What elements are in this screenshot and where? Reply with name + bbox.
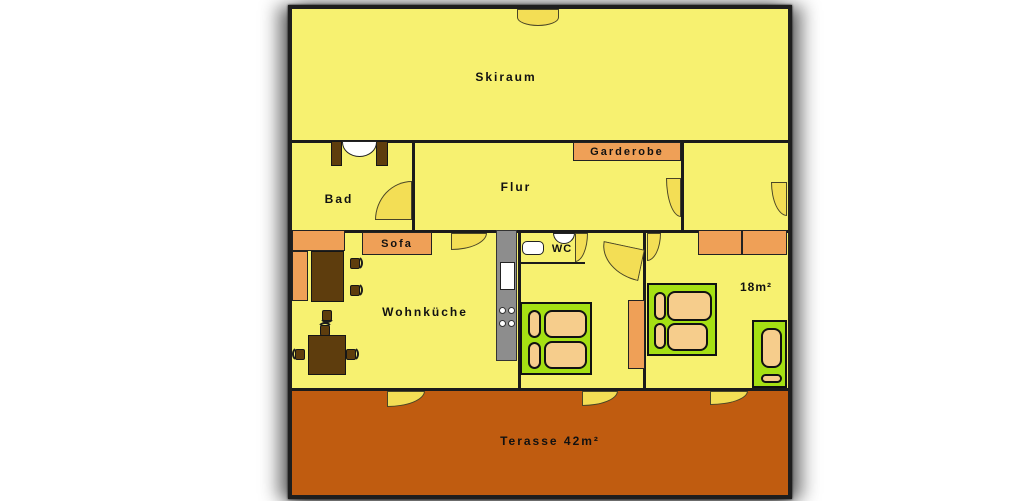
mattress [667,323,708,351]
stove-burner [508,307,515,314]
room-label-bad: Bad [325,192,354,206]
kitchen-sink [500,262,515,290]
sofa: Sofa [362,232,432,255]
wc-toilet [522,241,544,255]
mattress [544,310,587,338]
corner-bench-top [292,230,345,251]
door-swing-bad [375,181,412,220]
wardrobe [628,300,645,369]
room-label-bedroom-area: 18m² [740,280,772,294]
wall-bad-flur [412,140,415,233]
double-bed-right [647,283,717,356]
chair [321,309,331,320]
chair [319,324,329,335]
mattress [761,328,782,368]
chair [349,257,359,268]
pillow [654,292,666,320]
double-bed-left [520,302,592,375]
bath-cabinet-left [331,141,342,166]
door-swing-flur [666,178,681,217]
room-label-flur: Flur [501,180,532,194]
dining-table-1 [311,251,344,302]
door-swing-skiraum [517,9,559,26]
stove-burner [499,320,506,327]
door-swing-wohnkueche [451,233,487,250]
door-swing-exterior-right [771,182,787,216]
sofa-label: Sofa [381,238,413,250]
pillow [528,310,541,338]
garderobe-label: Garderobe [590,146,664,158]
mattress [544,341,587,369]
mattress [667,291,712,321]
door-swing-bedroom-left [597,241,645,281]
room-label-terrace: Terasse 42m² [500,434,600,448]
room-label-wc: WC [552,243,572,255]
room-label-wohnkueche: Wohnküche [382,305,468,319]
door-swing-bedroom-right [647,233,661,261]
wall-flur-right [681,140,684,233]
closet-left [698,230,742,255]
chair [345,348,355,359]
chair [349,284,359,295]
closet-right [742,230,787,255]
wall-wc-bottom [520,262,585,264]
washbasin [342,141,377,157]
dining-table-2 [308,335,346,375]
bath-cabinet-right [376,141,388,166]
kitchen-counter [496,230,517,361]
single-bed [752,320,787,388]
room-label-skiraum: Skiraum [475,70,536,84]
door-swing-wc [575,233,588,262]
chair [294,348,304,359]
garderobe-cabinet: Garderobe [573,142,681,161]
pillow [528,342,541,369]
stove-burner [499,307,506,314]
corner-bench-side [292,251,308,301]
pillow [654,323,666,349]
floor-plan: Garderobe Sofa Skiraum Bad [288,5,792,499]
stove-burner [508,320,515,327]
pillow [761,374,782,383]
